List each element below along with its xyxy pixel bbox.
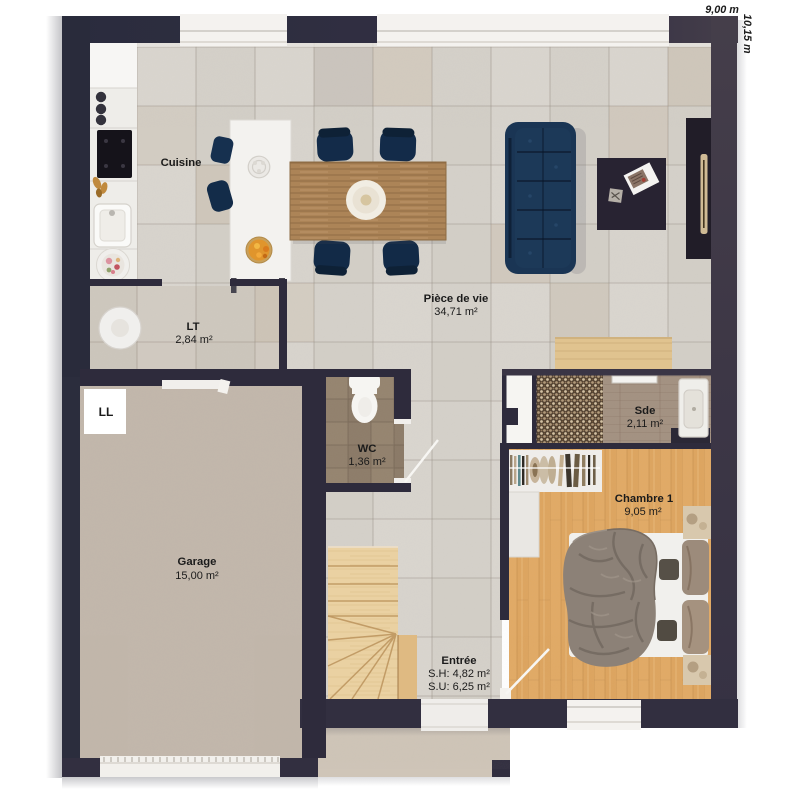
svg-text:10,15 m: 10,15 m [741, 14, 753, 54]
svg-text:Chambre 1: Chambre 1 [615, 493, 673, 505]
svg-text:WC: WC [358, 443, 377, 455]
svg-text:9,00 m: 9,00 m [705, 4, 739, 16]
svg-text:LT: LT [187, 321, 200, 333]
svg-text:2,11 m²: 2,11 m² [627, 418, 664, 430]
svg-text:9,05 m²: 9,05 m² [624, 506, 662, 518]
svg-text:S.H: 4,82 m²: S.H: 4,82 m² [428, 668, 490, 680]
svg-text:Entrée: Entrée [441, 655, 476, 667]
svg-text:15,00 m²: 15,00 m² [175, 570, 219, 582]
svg-text:34,71 m²: 34,71 m² [434, 306, 478, 318]
svg-text:S.U: 6,25 m²: S.U: 6,25 m² [428, 681, 490, 693]
svg-text:Garage: Garage [178, 556, 217, 568]
svg-text:2,84 m²: 2,84 m² [175, 334, 213, 346]
svg-text:LL: LL [99, 405, 114, 419]
svg-text:1,36 m²: 1,36 m² [348, 456, 386, 468]
svg-text:Sde: Sde [635, 405, 656, 417]
svg-text:Cuisine: Cuisine [161, 157, 202, 169]
svg-text:Pièce de vie: Pièce de vie [424, 293, 489, 305]
